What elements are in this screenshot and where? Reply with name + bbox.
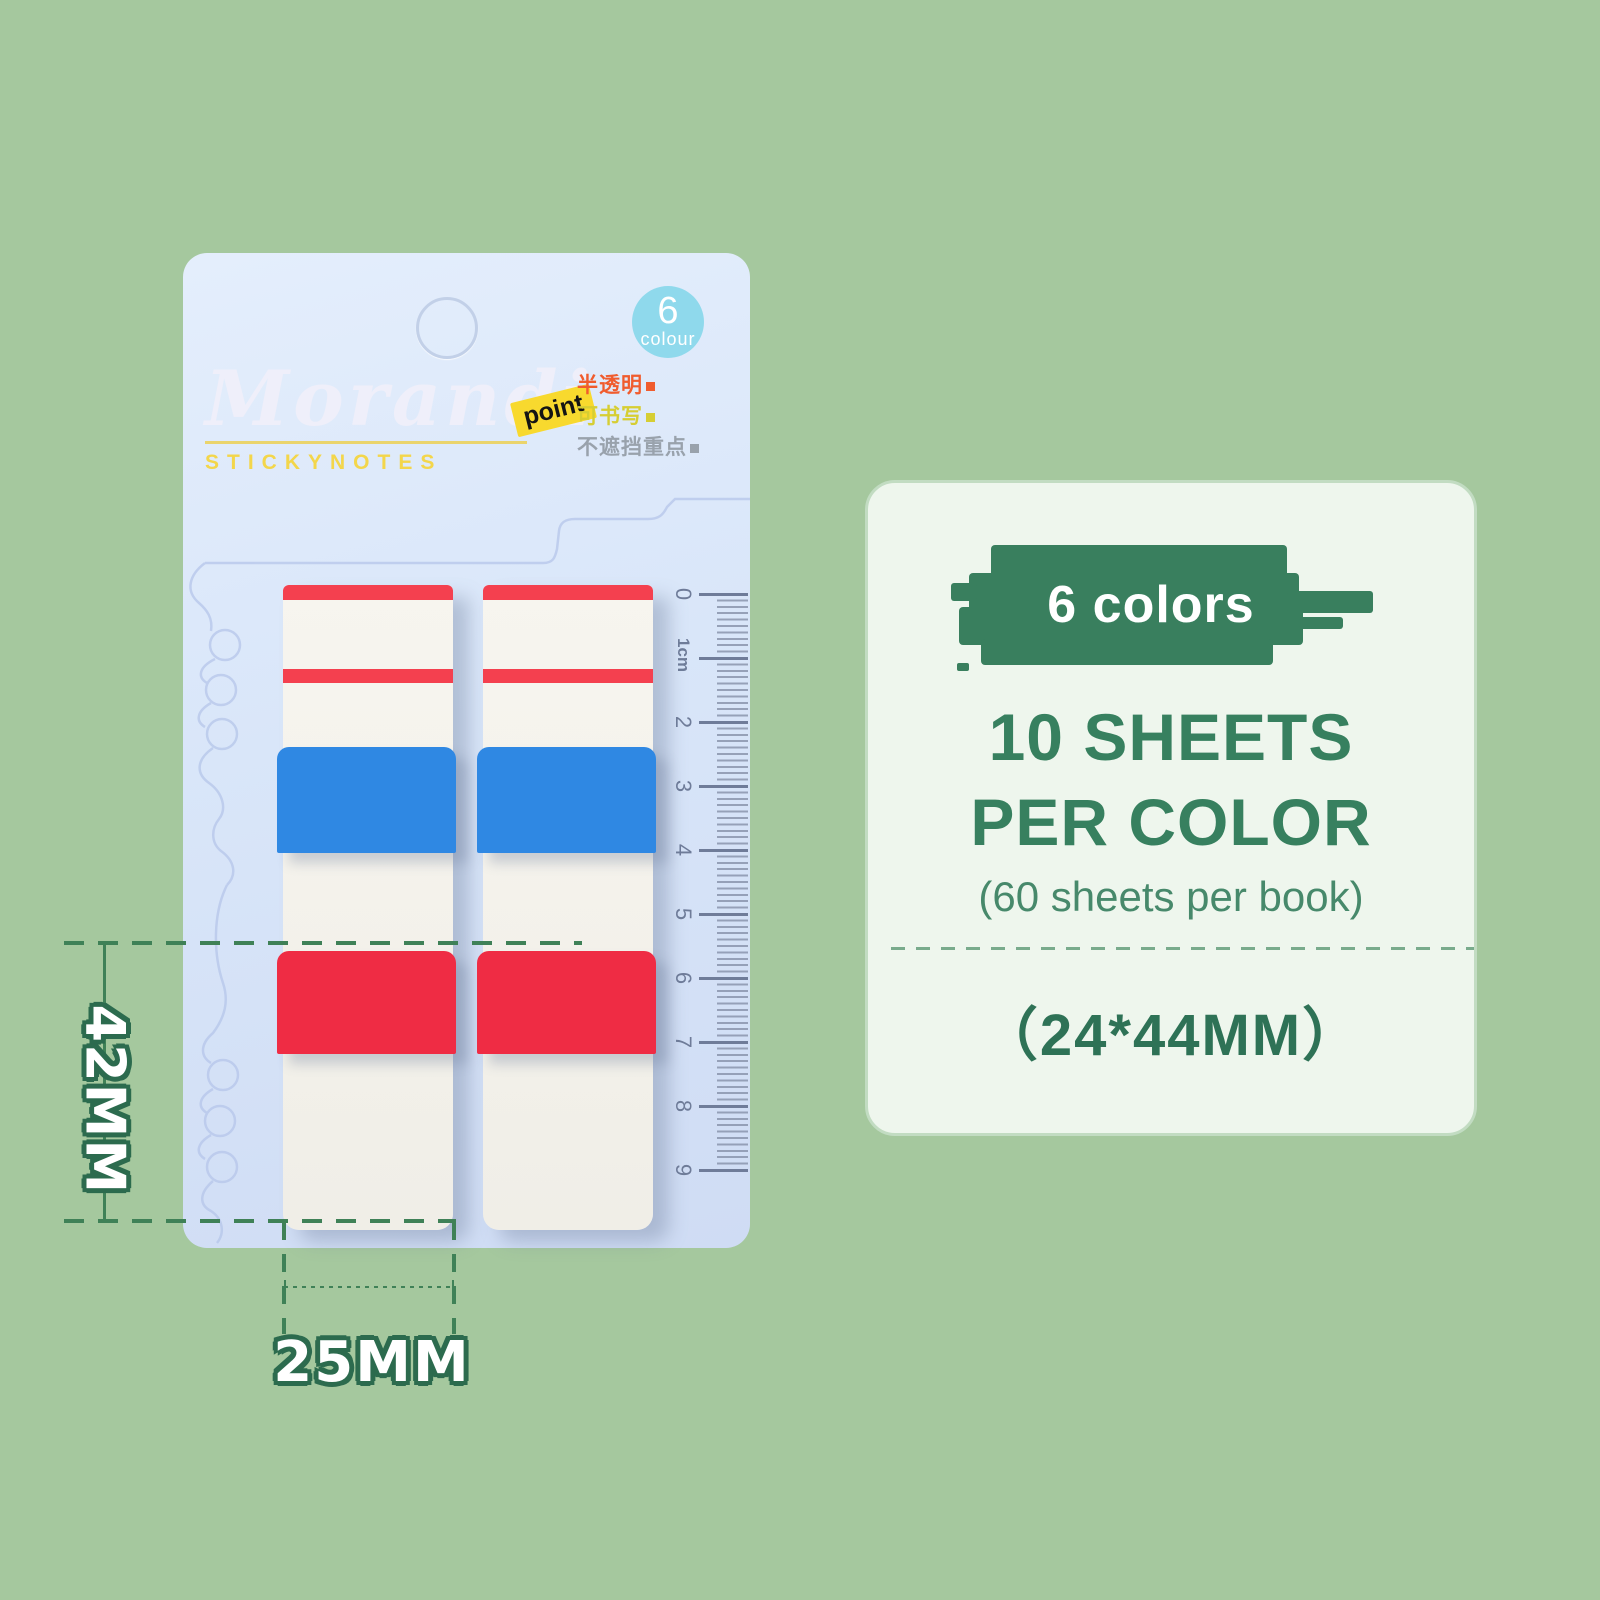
info-panel: 6 colors 10 SHEETS PER COLOR (60 sheets … <box>865 480 1477 1136</box>
ruler-label: 3 <box>670 764 696 808</box>
red-tab <box>277 951 456 1054</box>
ruler-label: 8 <box>670 1084 696 1128</box>
size-label: （24*44MM） <box>980 988 1362 1072</box>
highlight-brush: 6 colors <box>951 539 1391 681</box>
blue-tab <box>477 747 656 853</box>
package-card: 6 colour Morandi STICKYNOTES point 半透明 可… <box>183 253 750 1248</box>
ruler-label: 4 <box>670 828 696 872</box>
dashed-divider <box>891 947 1474 950</box>
width-dimension-label: 25MM <box>262 1330 482 1395</box>
ruler-label: 1cm <box>673 633 693 677</box>
ruler-label: 0 <box>670 572 696 616</box>
width-dimension-left-line <box>282 1222 286 1334</box>
ruler-label: 6 <box>670 956 696 1000</box>
blister-emboss <box>183 253 750 1248</box>
red-stripe-tab <box>483 585 653 600</box>
sheets-headline-line2: PER COLOR <box>970 780 1371 865</box>
width-dimension-tick <box>284 1280 286 1294</box>
height-dimension-top-line <box>64 941 582 945</box>
blue-tab <box>277 747 456 853</box>
sheets-note: (60 sheets per book) <box>978 873 1363 921</box>
tab-stack-left <box>283 585 453 1230</box>
tab-stack-right <box>483 585 653 1230</box>
highlight-label: 6 colors <box>951 539 1351 671</box>
ruler-ticks-major <box>699 593 748 1172</box>
width-dimension-right-line <box>452 1222 456 1334</box>
red-stripe-tab <box>283 669 453 683</box>
width-dimension-tick <box>452 1280 454 1294</box>
product-image: 6 colour Morandi STICKYNOTES point 半透明 可… <box>0 0 1600 1600</box>
width-dimension-connector <box>284 1286 454 1288</box>
sheets-headline-line1: 10 SHEETS <box>989 695 1354 780</box>
red-tab <box>477 951 656 1054</box>
red-stripe-tab <box>283 585 453 600</box>
height-dimension-label: 42MM <box>74 1005 137 1165</box>
ruler-label: 5 <box>670 892 696 936</box>
ruler-label: 7 <box>670 1020 696 1064</box>
ruler-label: 2 <box>670 700 696 744</box>
ruler-label: 9 <box>670 1148 696 1192</box>
height-dimension-bottom-line <box>64 1219 456 1223</box>
red-stripe-tab <box>483 669 653 683</box>
